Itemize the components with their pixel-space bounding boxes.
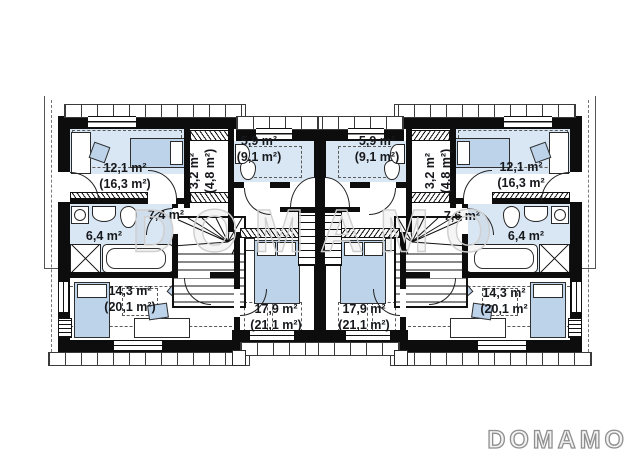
wall-radiator-icon [58, 318, 72, 338]
pillow-icon [457, 141, 470, 165]
room-attic-area: (20,1 m²) [104, 299, 155, 315]
eaves-band-bottom [390, 352, 592, 366]
room-area: 5,9 m² [355, 133, 399, 149]
room-attic-area: (21,1 m²) [338, 317, 389, 333]
desk-icon [549, 132, 569, 174]
washing-machine-drum-icon [554, 209, 566, 221]
room-attic-area: (16,3 m²) [99, 176, 150, 192]
door-opening [400, 289, 406, 317]
door-swing-arc [541, 172, 570, 201]
window-icon [504, 116, 552, 128]
room-area: 17,9 m² [338, 301, 389, 317]
room-label-bathroom-left: 6,4 m² [86, 228, 122, 244]
wall-wardrobe-right [406, 129, 412, 232]
window-icon [58, 282, 69, 312]
floor-plan-canvas: 12,1 m² (16,3 m²) 3,2 m² (4,8 m²) 5,9 m²… [0, 0, 640, 465]
shower-icon [539, 244, 570, 273]
room-area: 17,9 m² [250, 301, 301, 317]
roof-dashed-line-right [588, 100, 589, 352]
pillow-icon [533, 284, 563, 298]
room-label-wardrobe-right: 3,2 m² (4,8 m²) [422, 149, 454, 193]
wardrobe-shelf-icon [410, 192, 450, 203]
room-attic-area: (16,3 m² [497, 175, 544, 191]
sink-icon [92, 206, 116, 222]
room-attic-area: (21,1 m²) [250, 317, 301, 333]
eaves-band-bottom-center [240, 342, 322, 356]
room-area: 14,3 m² [104, 283, 155, 299]
pillow-icon [364, 242, 383, 256]
door-swing-arc [148, 170, 177, 199]
room-label-wardrobe-left: 3,2 m² (4,8 m²) [186, 149, 218, 193]
room-area: 12,1 m² [497, 159, 544, 175]
washing-machine-drum-icon [74, 209, 86, 221]
room-label-bedroom-right-bottom: 17,9 m² (21,1 m²) [338, 301, 389, 333]
desk-icon [134, 318, 190, 338]
flue-duct-icon [324, 212, 342, 266]
pillow-icon [257, 242, 276, 256]
wardrobe-shelf-icon [190, 192, 230, 203]
door-opening [58, 172, 70, 202]
wardrobe-shelf-icon [410, 130, 450, 141]
room-area: 6,4 m² [508, 228, 544, 244]
room-label-bathroom-right: 6,4 m² [508, 228, 544, 244]
room-attic-area: (4,8 m²) [202, 149, 218, 193]
room-area: 5,9 m² [237, 133, 281, 149]
room-attic-area: (9,1 m²) [237, 149, 281, 165]
pillow-icon [277, 242, 296, 256]
room-label-room-left-bottom: 14,3 m² (20,1 m²) [104, 283, 155, 315]
wardrobe-shelf-icon [190, 130, 230, 141]
eaves-step-block [232, 350, 246, 366]
room-area: 3,2 m² [422, 149, 438, 193]
door-swing-arc [244, 188, 271, 215]
room-label-bedroom-left-top: 12,1 m² (16,3 m²) [99, 160, 150, 192]
eaves-band-bottom-center [318, 342, 400, 356]
roof-edge-line-left [44, 96, 45, 268]
door-swing-arc [70, 172, 99, 201]
window-icon [114, 340, 162, 351]
room-label-hall-right: 7,6 m² [444, 208, 480, 224]
room-area: 12,1 m² [99, 160, 150, 176]
wall-left [570, 116, 582, 352]
roof-edge-line-right [595, 96, 596, 268]
room-area: 7,6 m² [444, 208, 480, 224]
eaves-step-block [394, 350, 408, 366]
room-attic-area: (9,1 m²) [355, 149, 399, 165]
room-label-bedroom-left-bottom: 17,9 m² (21,1 m²) [250, 301, 301, 333]
room-area: 3,2 m² [186, 149, 202, 193]
desk-icon [71, 132, 91, 174]
room-label-room-right-bottom: 14,3 m² (20,1 m² [480, 285, 527, 317]
window-icon [571, 282, 582, 312]
roof-edge-tick-right [582, 268, 596, 269]
room-label-bathroom-right-top: 5,9 m² (9,1 m²) [355, 133, 399, 165]
room-label-bedroom-right-top: 12,1 m² (16,3 m² [497, 159, 544, 191]
flue-duct-icon [298, 212, 316, 266]
shower-icon [70, 244, 101, 273]
door-swing-arc [369, 188, 396, 215]
bathtub-inner-icon [106, 248, 166, 269]
wall-wardrobe-right [228, 129, 234, 232]
sink-icon [524, 206, 548, 222]
room-area: 14,3 m² [480, 285, 527, 301]
room-label-hall-left: 7,4 m² [148, 207, 184, 223]
bathtub-inner-icon [474, 248, 534, 269]
window-icon [478, 340, 526, 351]
door-opening [570, 172, 582, 202]
roof-dashed-line-left [51, 100, 52, 352]
room-attic-area: (4,8 m²) [438, 149, 454, 193]
room-area: 7,4 m² [148, 207, 184, 223]
pillow-icon [344, 242, 363, 256]
room-area: 6,4 m² [86, 228, 122, 244]
nightstand-icon [245, 238, 255, 251]
door-swing-arc [463, 170, 492, 199]
wall-left [58, 116, 70, 352]
eaves-band-bottom [48, 352, 250, 366]
pillow-icon [77, 284, 107, 298]
desk-icon [450, 318, 506, 338]
window-icon [88, 116, 136, 128]
wall-radiator-icon [568, 318, 582, 338]
room-attic-area: (20,1 m² [480, 301, 527, 317]
pillow-icon [170, 141, 183, 165]
brand-logo: DOMAMO [487, 426, 628, 455]
room-label-bathroom-left-top: 5,9 m² (9,1 m²) [237, 133, 281, 165]
